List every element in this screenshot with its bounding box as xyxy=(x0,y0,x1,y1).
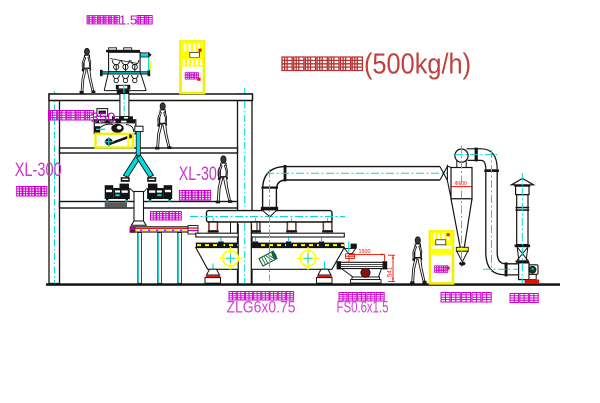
svg-text:XL-300: XL-300 xyxy=(15,159,62,181)
svg-text:1500: 1500 xyxy=(359,249,371,255)
svg-text:Φ600: Φ600 xyxy=(455,181,468,187)
svg-text:XL-300: XL-300 xyxy=(179,163,225,185)
svg-text:(500kg/h): (500kg/h) xyxy=(364,49,471,81)
svg-text:FS0.6x1.5: FS0.6x1.5 xyxy=(337,298,389,317)
svg-text:ZLG6x0.75: ZLG6x0.75 xyxy=(227,298,296,317)
svg-text:541: 541 xyxy=(387,266,393,277)
svg-text:350: 350 xyxy=(91,110,116,127)
svg-text:1.5: 1.5 xyxy=(119,13,137,28)
